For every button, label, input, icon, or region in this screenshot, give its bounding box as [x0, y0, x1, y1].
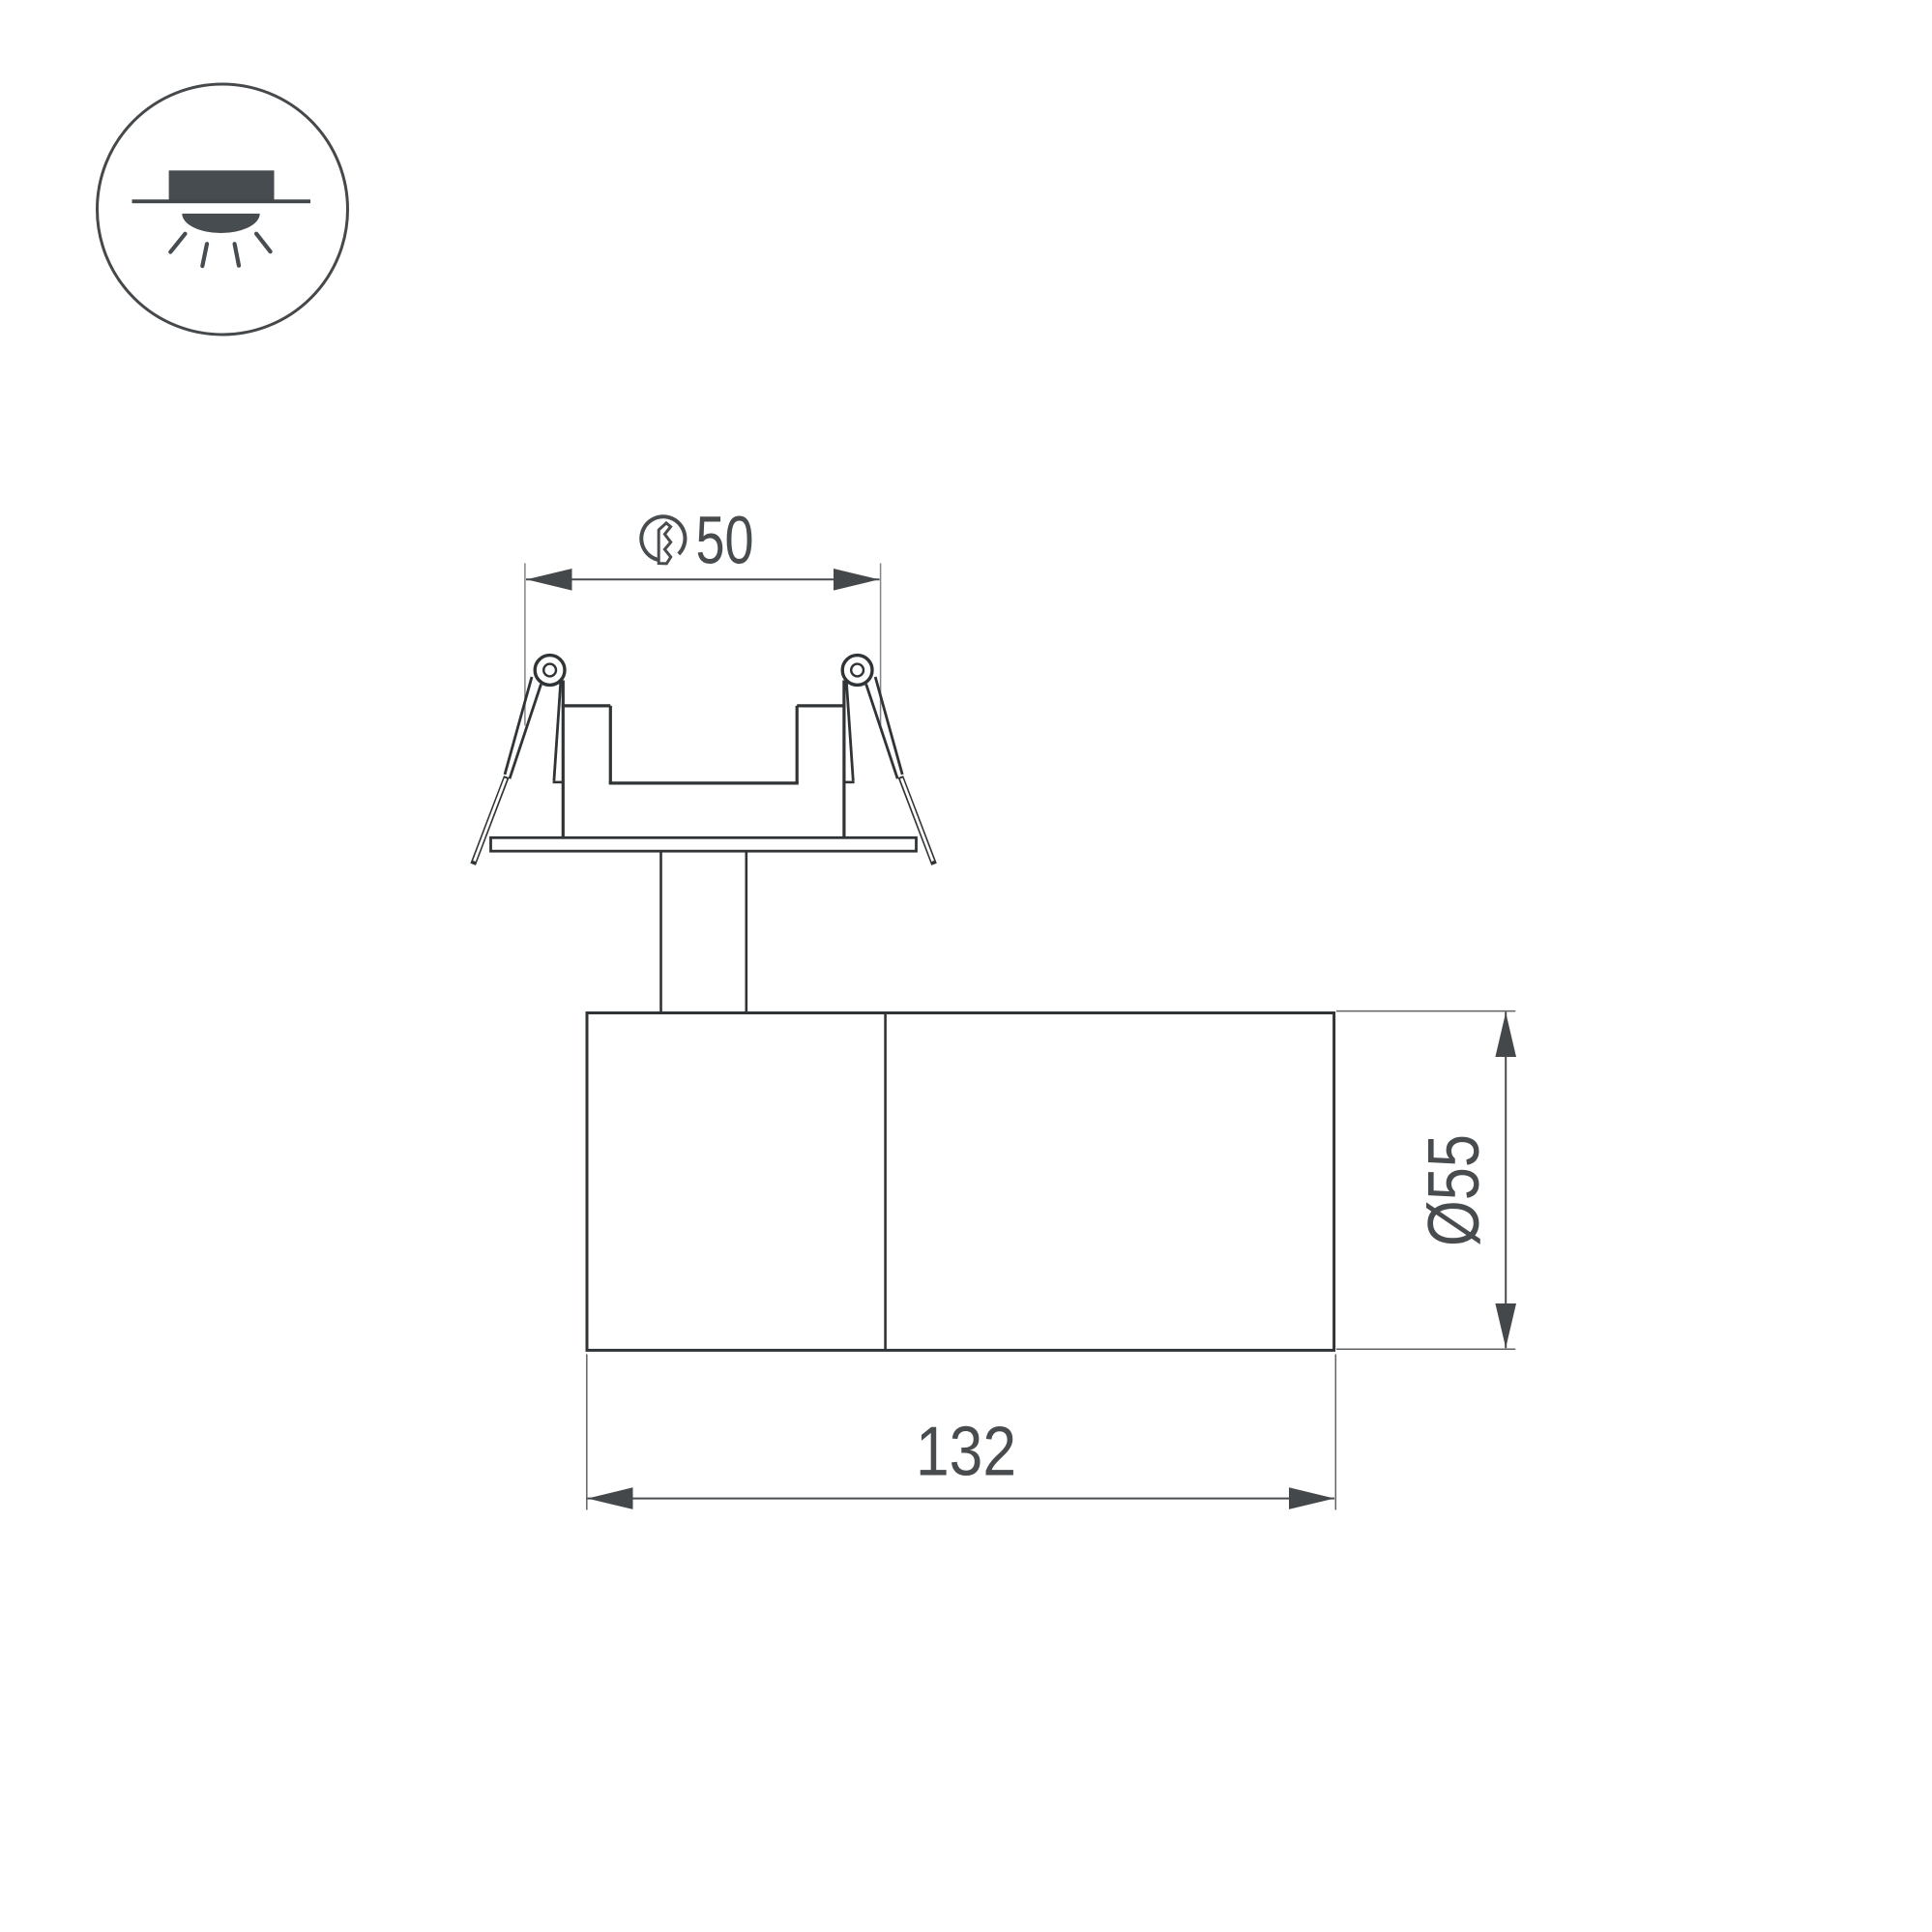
- svg-text:132: 132: [916, 1414, 1016, 1491]
- svg-text:50: 50: [696, 503, 754, 578]
- svg-text:Ø55: Ø55: [1413, 1134, 1494, 1246]
